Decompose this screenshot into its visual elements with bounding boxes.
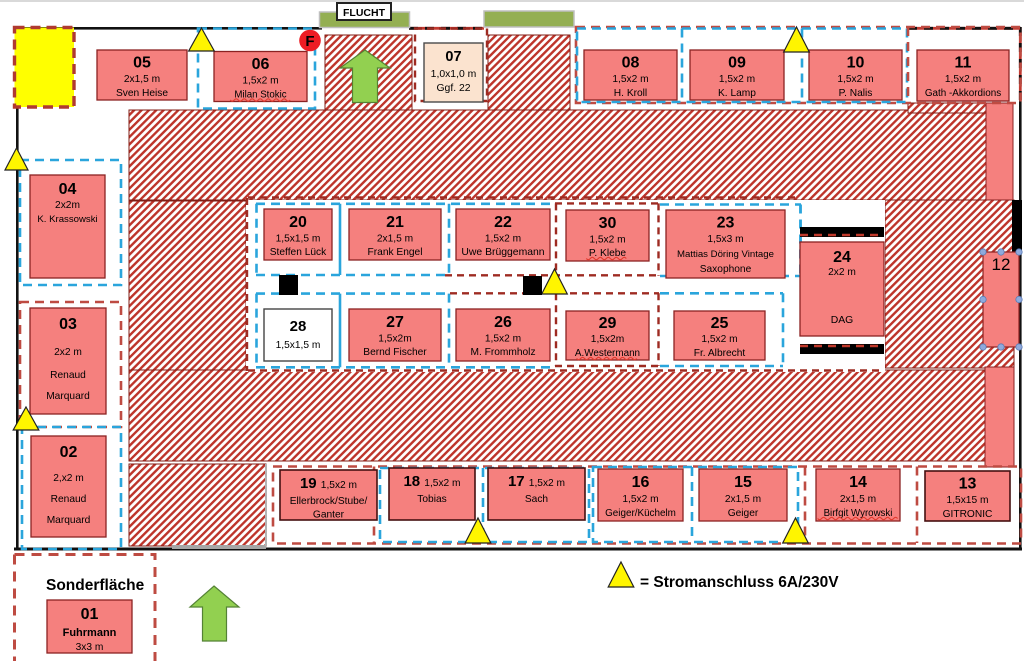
svg-text:1,5x2m: 1,5x2m: [591, 334, 624, 345]
svg-text:07: 07: [445, 49, 461, 65]
svg-text:2x1,5 m: 2x1,5 m: [840, 494, 876, 505]
svg-text:02: 02: [60, 444, 78, 461]
svg-text:Bernd Fischer: Bernd Fischer: [363, 347, 427, 358]
svg-text:Fr. Albrecht: Fr. Albrecht: [694, 348, 746, 359]
svg-text:FLUCHT: FLUCHT: [343, 7, 386, 19]
svg-text:1,5x2 m: 1,5x2 m: [622, 494, 658, 505]
svg-text:2x1,5 m: 2x1,5 m: [725, 494, 761, 505]
svg-text:29: 29: [599, 315, 617, 332]
svg-text:P. Nalis: P. Nalis: [839, 88, 873, 99]
svg-text:09: 09: [728, 55, 746, 72]
svg-text:M. Frommholz: M. Frommholz: [470, 347, 535, 358]
svg-text:Sven Heise: Sven Heise: [116, 88, 168, 99]
svg-text:1,0x1,0 m: 1,0x1,0 m: [431, 69, 477, 80]
svg-text:15: 15: [734, 474, 752, 491]
svg-text:Fuhrmann: Fuhrmann: [63, 627, 117, 639]
svg-text:1,5x3 m: 1,5x3 m: [707, 234, 743, 245]
svg-text:K. Krassowski: K. Krassowski: [37, 214, 97, 225]
svg-text:2x2 m: 2x2 m: [54, 347, 82, 358]
svg-text:21: 21: [386, 214, 404, 231]
svg-text:2x1,5 m: 2x1,5 m: [377, 234, 413, 245]
svg-text:2x2m: 2x2m: [55, 200, 80, 211]
svg-text:Saxophone: Saxophone: [700, 264, 752, 275]
svg-text:Marquard: Marquard: [46, 391, 90, 402]
svg-text:1,5x2 m: 1,5x2 m: [485, 334, 521, 345]
svg-text:04: 04: [59, 181, 77, 198]
svg-text:01: 01: [81, 606, 99, 623]
svg-text:1,5x2 m: 1,5x2 m: [612, 74, 648, 85]
svg-text:1,5x2 m: 1,5x2 m: [837, 74, 873, 85]
svg-text:Birfgit Wyrowski: Birfgit Wyrowski: [824, 508, 893, 519]
svg-text:Ganter: Ganter: [313, 510, 345, 521]
svg-text:24: 24: [833, 249, 851, 266]
svg-text:K. Lamp: K. Lamp: [718, 88, 756, 99]
svg-text:Sach: Sach: [525, 494, 548, 505]
svg-text:Mattias Döring Vintage: Mattias Döring Vintage: [677, 249, 774, 260]
svg-text:1,5x2 m: 1,5x2 m: [701, 334, 737, 345]
svg-text:1,5x1,5 m: 1,5x1,5 m: [276, 234, 321, 245]
svg-text:1,5x2m: 1,5x2m: [378, 334, 411, 345]
svg-text:GITRONIC: GITRONIC: [943, 509, 993, 520]
svg-text:05: 05: [133, 55, 151, 72]
svg-text:Marquard: Marquard: [47, 515, 91, 526]
svg-text:25: 25: [711, 315, 729, 332]
svg-text:12: 12: [992, 255, 1011, 274]
svg-text:H. Kroll: H. Kroll: [614, 88, 647, 99]
svg-text:28: 28: [290, 318, 307, 335]
svg-text:3x3 m: 3x3 m: [76, 642, 104, 653]
svg-text:DAG: DAG: [831, 315, 854, 326]
svg-text:13: 13: [959, 476, 977, 493]
svg-text:08: 08: [622, 55, 640, 72]
svg-text:Gath -Akkordions: Gath -Akkordions: [925, 88, 1001, 99]
svg-text:14: 14: [849, 474, 867, 491]
svg-text:Ellerbrock/Stube/: Ellerbrock/Stube/: [290, 496, 368, 507]
svg-text:2x1,5 m: 2x1,5 m: [124, 74, 160, 85]
svg-text:1,5x2 m: 1,5x2 m: [242, 76, 278, 87]
svg-text:Sonderfläche: Sonderfläche: [46, 577, 145, 594]
svg-text:30: 30: [599, 215, 617, 232]
svg-text:1,5x2 m: 1,5x2 m: [719, 74, 755, 85]
svg-text:Uwe Brüggemann: Uwe Brüggemann: [461, 247, 544, 258]
svg-text:F: F: [305, 33, 314, 50]
svg-text:16: 16: [632, 474, 650, 491]
svg-text:1,5x2 m: 1,5x2 m: [945, 74, 981, 85]
svg-text:1,5x2 m: 1,5x2 m: [589, 235, 625, 246]
svg-text:22: 22: [494, 214, 512, 231]
svg-text:Geiger: Geiger: [728, 508, 759, 519]
svg-text:Geiger/Küchelm: Geiger/Küchelm: [605, 508, 676, 519]
svg-text:26: 26: [494, 314, 512, 331]
svg-text:03: 03: [59, 316, 77, 333]
svg-text:= Stromanschluss 6A/230V: = Stromanschluss 6A/230V: [640, 574, 839, 591]
svg-text:Renaud: Renaud: [50, 370, 86, 381]
svg-text:Frank Engel: Frank Engel: [368, 247, 423, 258]
svg-text:Steffen Lück: Steffen Lück: [270, 247, 327, 258]
svg-text:2,x2 m: 2,x2 m: [53, 473, 84, 484]
svg-text:06: 06: [252, 56, 270, 73]
svg-text:2x2 m: 2x2 m: [828, 267, 856, 278]
svg-text:Renaud: Renaud: [51, 494, 87, 505]
svg-text:1,5x15 m: 1,5x15 m: [947, 495, 989, 506]
svg-text:11: 11: [955, 55, 972, 72]
svg-text:1,5x1,5 m: 1,5x1,5 m: [276, 340, 321, 351]
svg-text:27: 27: [386, 314, 404, 331]
svg-text:Ggf. 22: Ggf. 22: [436, 83, 470, 94]
svg-text:23: 23: [717, 215, 735, 232]
svg-text:Tobias: Tobias: [417, 494, 446, 505]
svg-text:1,5x2 m: 1,5x2 m: [485, 234, 521, 245]
svg-text:10: 10: [847, 55, 865, 72]
svg-text:20: 20: [289, 214, 307, 231]
